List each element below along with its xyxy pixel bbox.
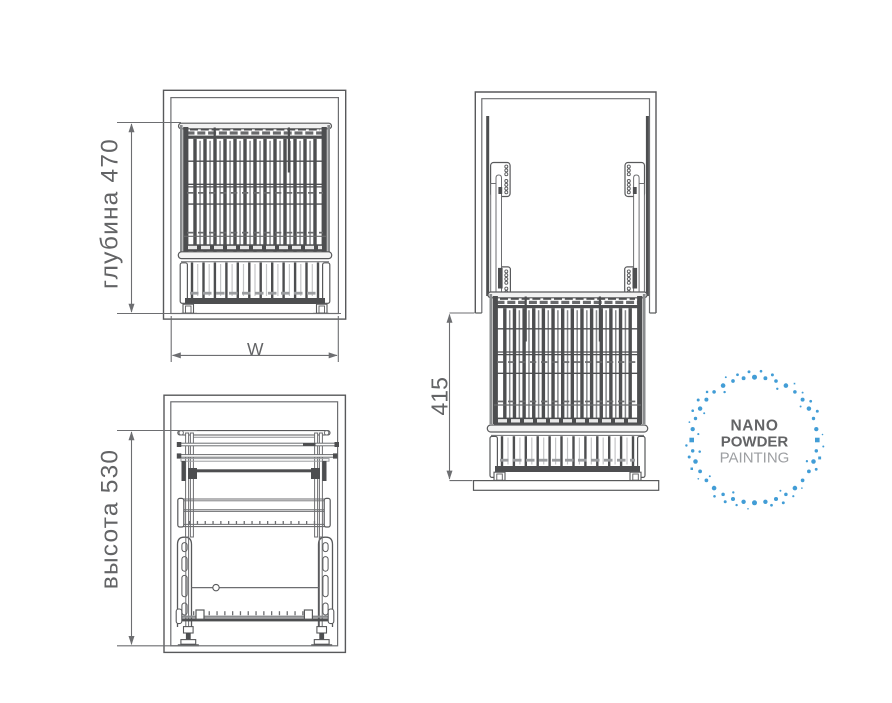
svg-text:415: 415 <box>427 377 453 415</box>
svg-text:POWDER: POWDER <box>721 434 789 451</box>
svg-text:NANO: NANO <box>730 418 778 435</box>
svg-text:глубина 470: глубина 470 <box>97 138 124 289</box>
svg-text:W: W <box>247 339 264 359</box>
svg-text:PAINTING: PAINTING <box>720 449 790 466</box>
svg-text:высота 530: высота 530 <box>97 449 124 590</box>
